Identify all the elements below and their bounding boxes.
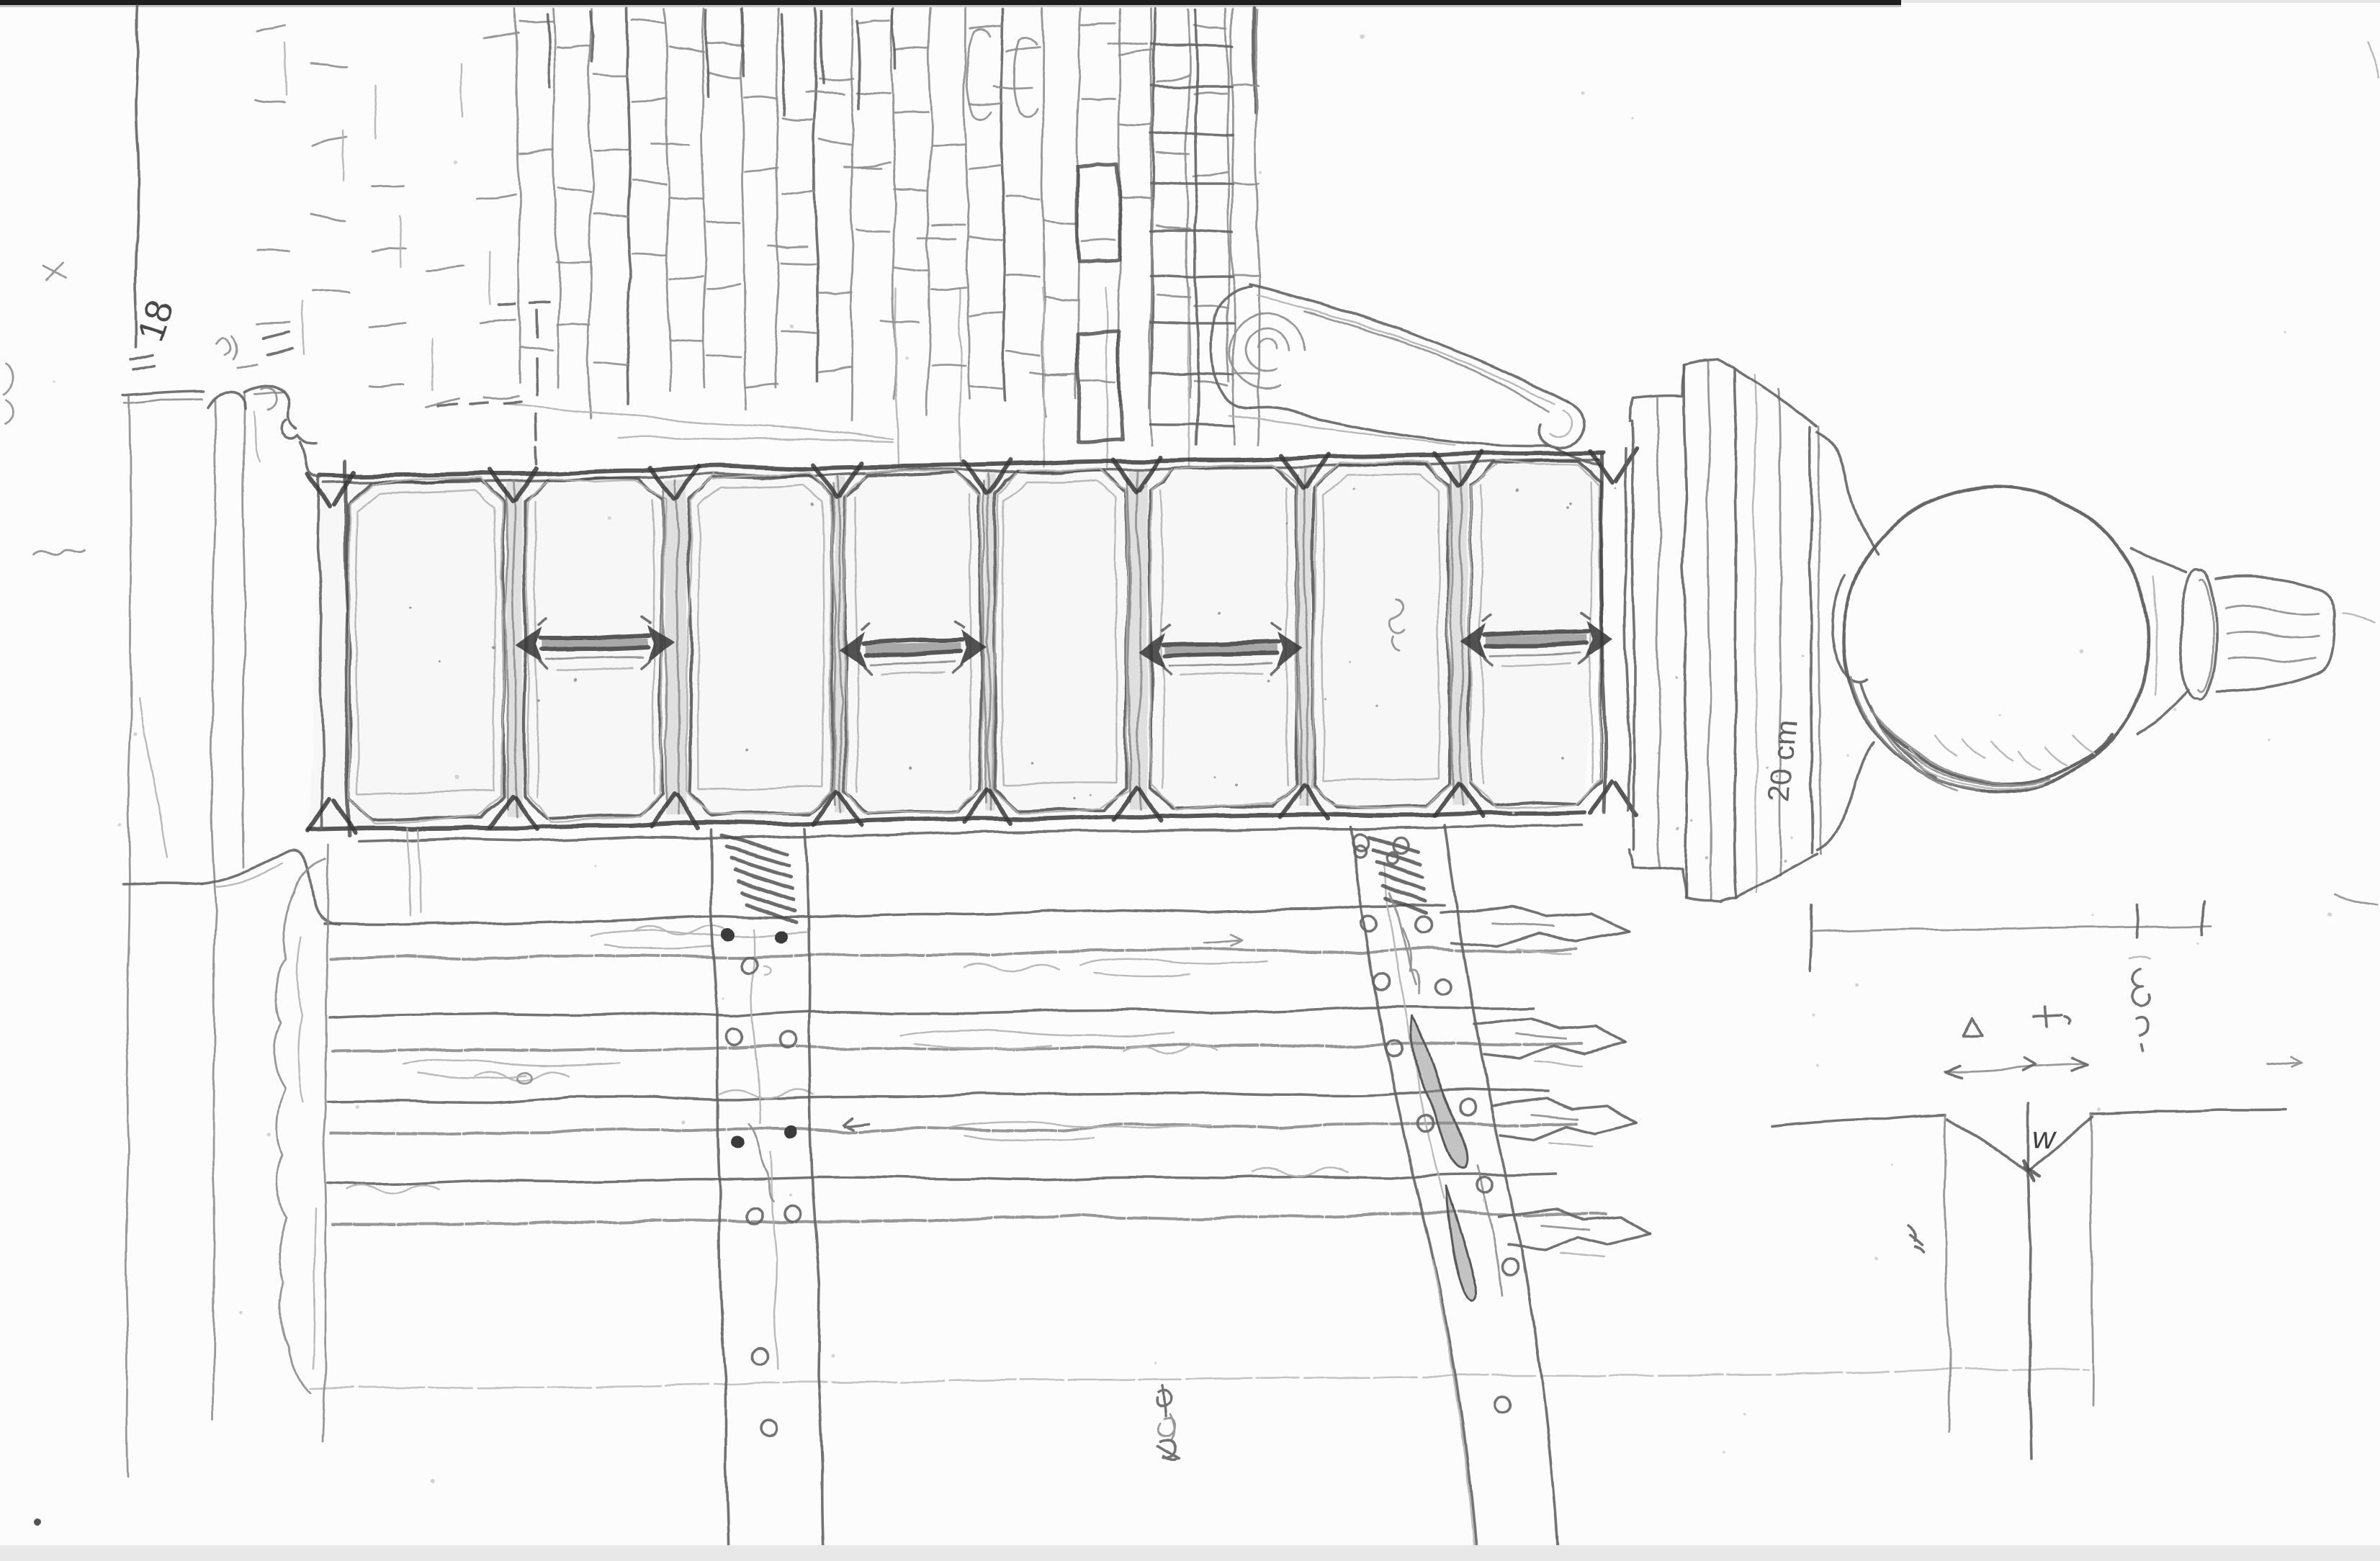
svg-text:20 cm: 20 cm <box>1761 719 1804 804</box>
svg-text:w: w <box>2032 1120 2057 1155</box>
svg-text:18: 18 <box>130 294 182 347</box>
